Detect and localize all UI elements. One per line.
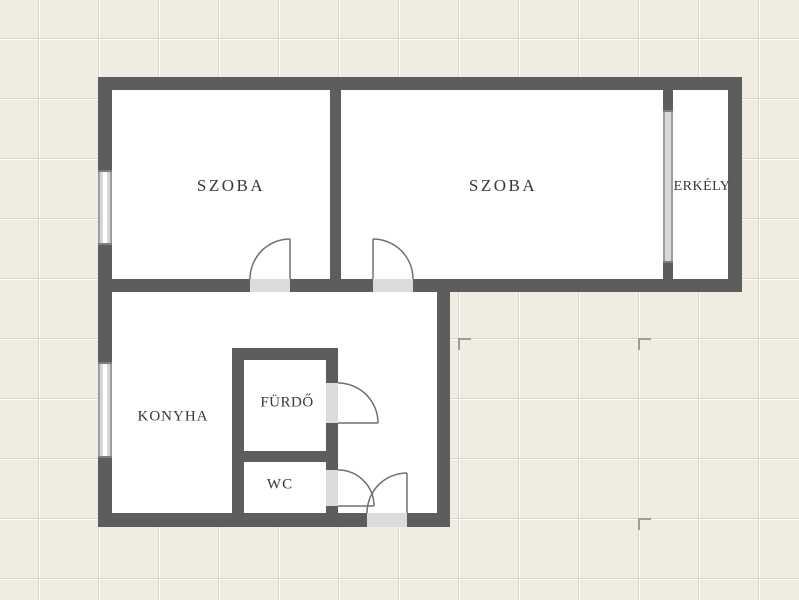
grid-corner-tick xyxy=(638,518,651,530)
door-opening-entrance xyxy=(367,513,407,527)
door-opening-wc xyxy=(326,470,338,506)
wall-left-exterior xyxy=(98,77,112,527)
room-label-wc: WC xyxy=(267,477,293,494)
floorplan-canvas: SZOBA SZOBA ERKÉLY KONYHA FÜRDŐ WC xyxy=(0,0,799,600)
wall-middle-horizontal xyxy=(98,279,742,292)
window-erkely-icon xyxy=(663,110,673,263)
room-label-konyha: KONYHA xyxy=(138,409,209,426)
room-label-furdo: FÜRDŐ xyxy=(260,395,313,412)
wall-furdo-wc-divider xyxy=(232,451,338,462)
door-opening-szoba-2 xyxy=(373,279,413,292)
wall-between-szoba-rooms xyxy=(330,90,341,279)
door-opening-szoba-1 xyxy=(250,279,290,292)
room-label-szoba-2: SZOBA xyxy=(469,176,537,196)
room-label-szoba-1: SZOBA xyxy=(197,176,265,196)
wall-furdo-wc-left xyxy=(232,348,244,513)
door-opening-furdo xyxy=(326,383,338,423)
wall-top-exterior xyxy=(98,77,742,90)
wall-furdo-top xyxy=(232,348,338,360)
upper-section-floor xyxy=(98,77,742,292)
grid-corner-tick xyxy=(458,338,471,350)
grid-corner-tick xyxy=(638,338,651,350)
room-label-erkely: ERKÉLY xyxy=(674,179,731,195)
window-konyha-icon xyxy=(98,362,112,458)
window-szoba-1-icon xyxy=(98,170,112,245)
wall-right-exterior-lower xyxy=(437,292,450,527)
